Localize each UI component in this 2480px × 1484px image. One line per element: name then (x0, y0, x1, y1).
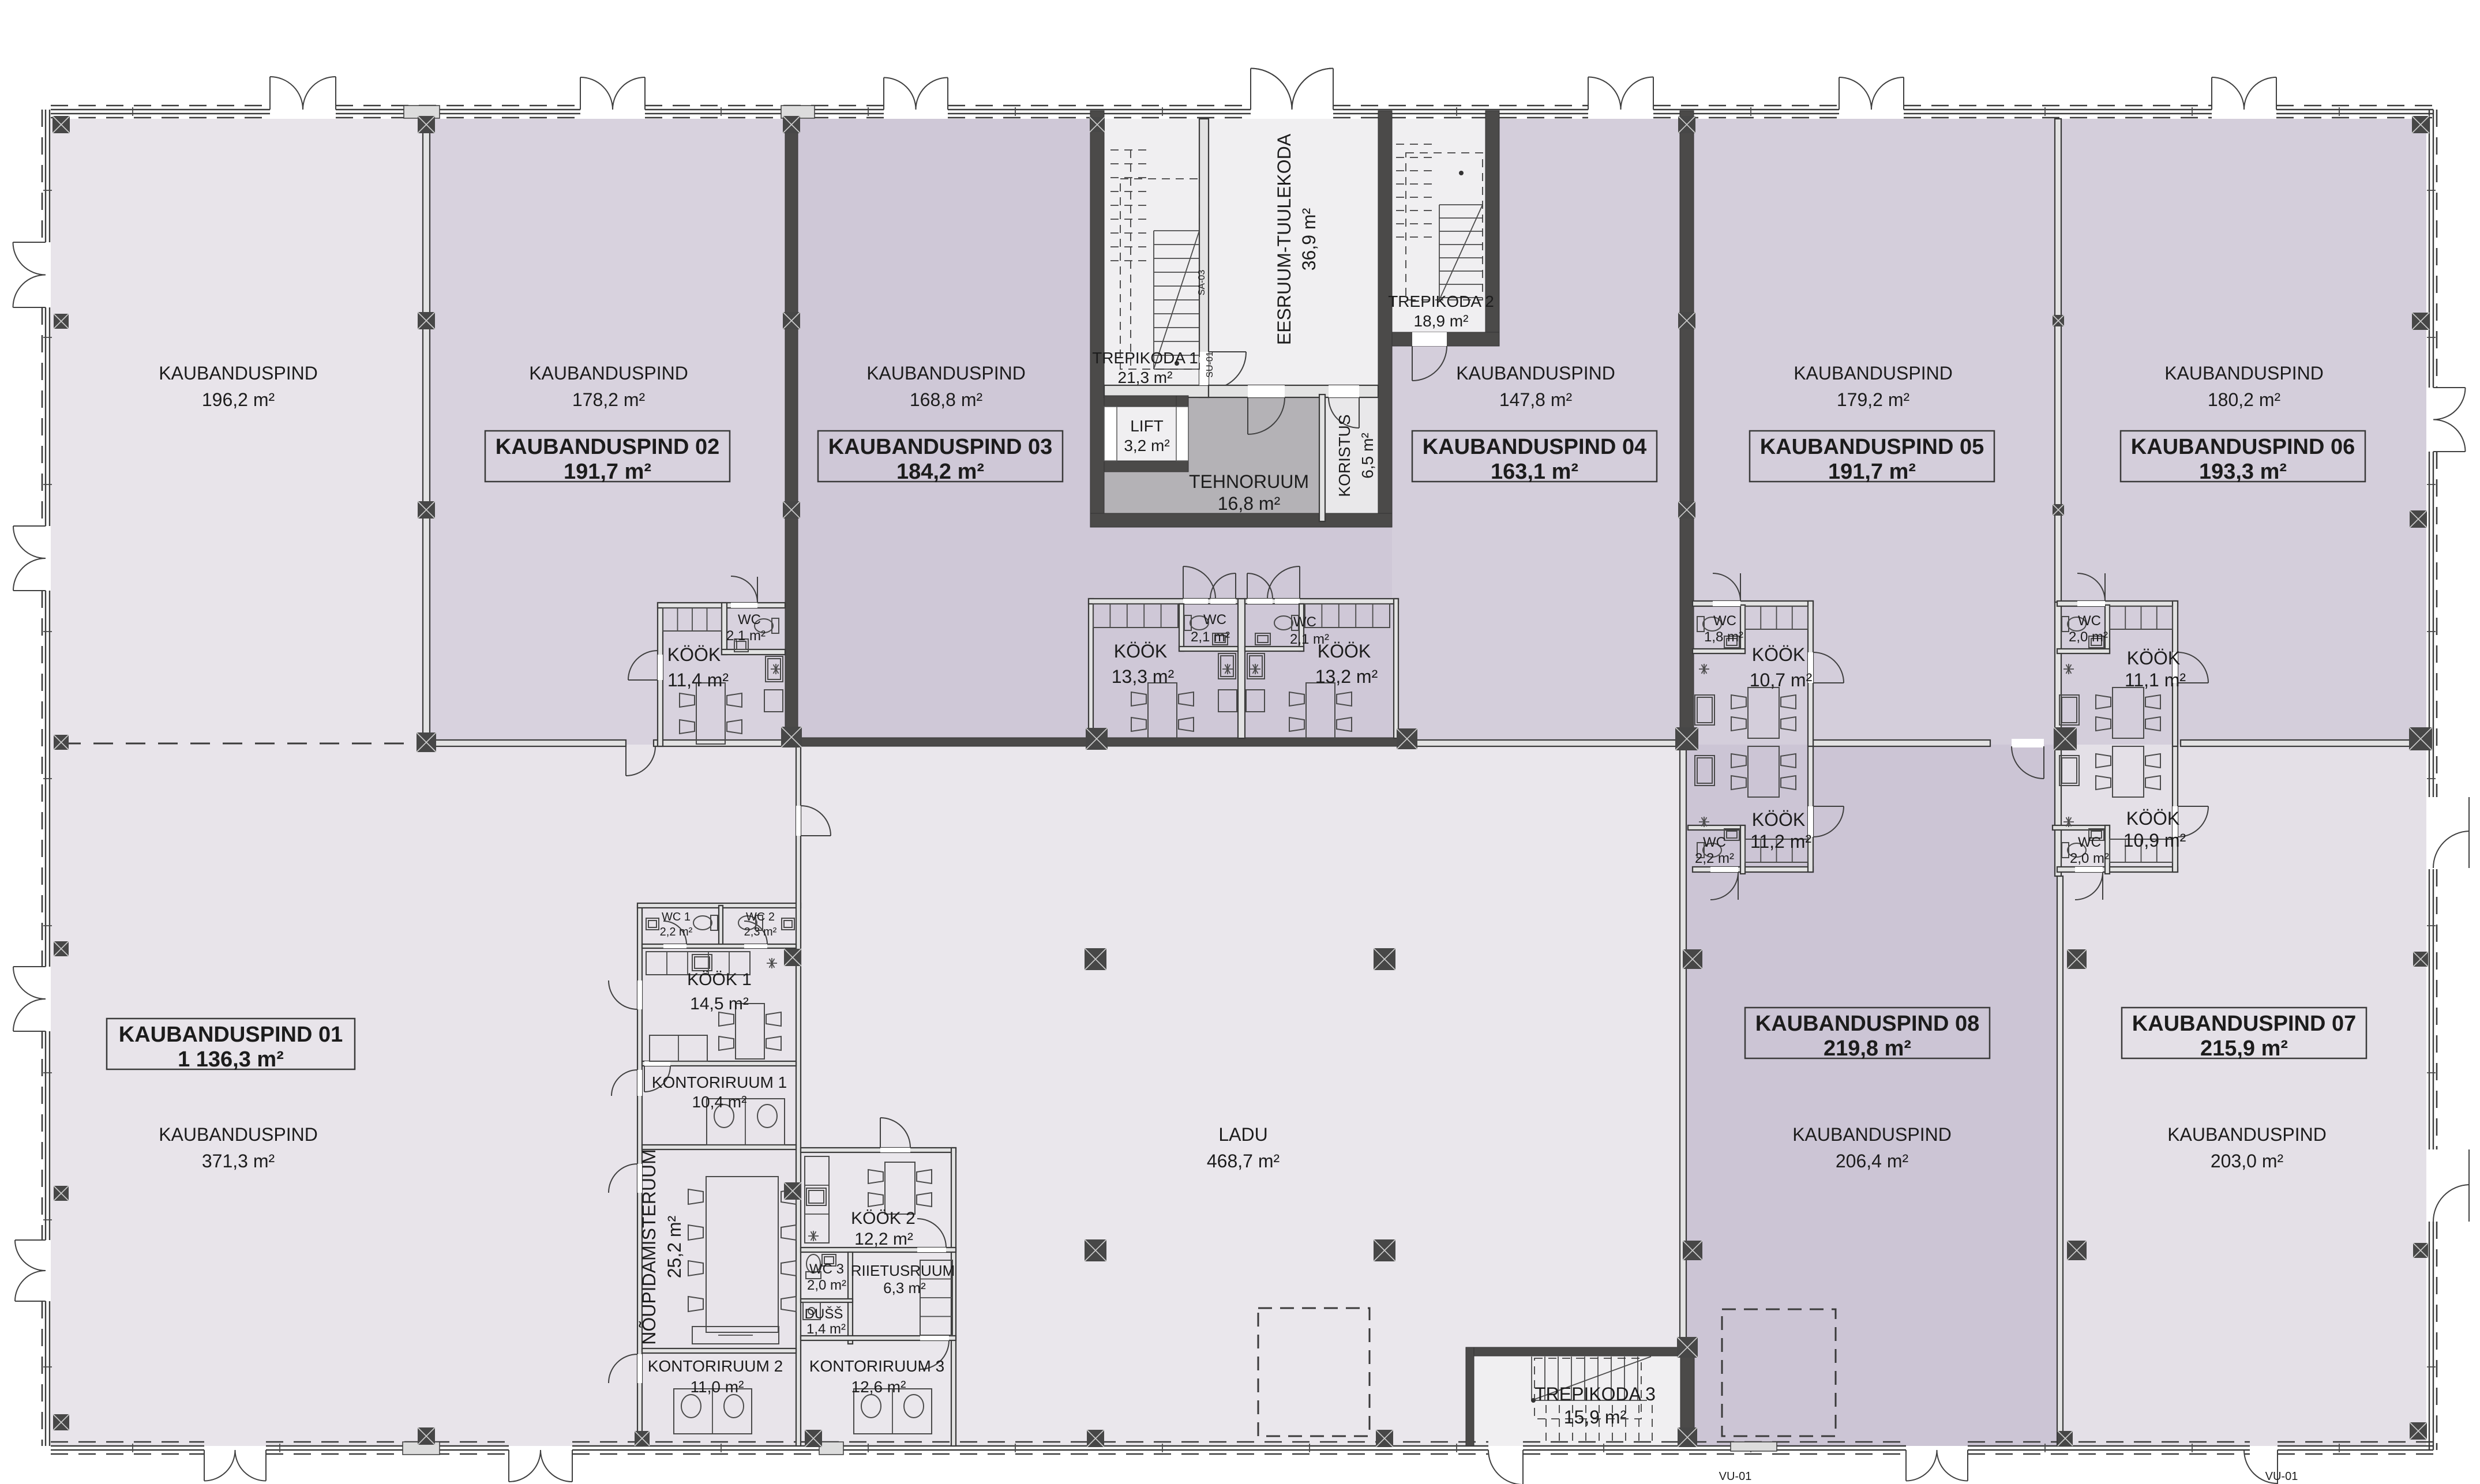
svg-text:25,2 m²: 25,2 m² (664, 1215, 685, 1278)
svg-text:RIIETUSRUUM: RIIETUSRUUM (851, 1262, 955, 1279)
svg-text:KONTORIRUUM 1: KONTORIRUUM 1 (652, 1073, 787, 1091)
svg-text:LIFT: LIFT (1130, 417, 1164, 435)
svg-text:36,9 m²: 36,9 m² (1299, 208, 1319, 270)
svg-text:WC 1: WC 1 (662, 911, 691, 923)
svg-text:10,7 m²: 10,7 m² (1750, 670, 1813, 690)
svg-text:15,9 m²: 15,9 m² (1564, 1407, 1627, 1427)
svg-text:1,8 m²: 1,8 m² (1704, 629, 1743, 645)
svg-text:184,2 m²: 184,2 m² (896, 460, 984, 484)
svg-text:191,7 m²: 191,7 m² (1828, 460, 1916, 484)
svg-text:203,0 m²: 203,0 m² (2211, 1151, 2284, 1171)
svg-text:468,7 m²: 468,7 m² (1207, 1151, 1280, 1171)
svg-text:11,1 m²: 11,1 m² (2125, 670, 2186, 690)
svg-text:KÖÖK: KÖÖK (1114, 641, 1167, 662)
svg-text:KORISTUS: KORISTUS (1335, 414, 1353, 497)
svg-text:147,8 m²: 147,8 m² (1499, 389, 1573, 410)
svg-text:11,4 m²: 11,4 m² (667, 670, 729, 690)
svg-text:11,2 m²: 11,2 m² (1750, 831, 1811, 852)
svg-text:180,2 m²: 180,2 m² (2208, 389, 2281, 410)
svg-text:1 136,3 m²: 1 136,3 m² (178, 1047, 284, 1072)
svg-text:WC 2: WC 2 (746, 911, 775, 923)
svg-text:2,1 m²: 2,1 m² (726, 628, 766, 644)
svg-text:163,1 m²: 163,1 m² (1491, 460, 1578, 484)
svg-text:21,3 m²: 21,3 m² (1118, 369, 1173, 386)
svg-text:10,9 m²: 10,9 m² (2123, 830, 2186, 851)
svg-text:KAUBANDUSPIND: KAUBANDUSPIND (2164, 363, 2324, 384)
svg-text:EESRUUM-TUULEKODA: EESRUUM-TUULEKODA (1274, 133, 1295, 345)
svg-text:2,2 m²: 2,2 m² (1695, 851, 1734, 866)
svg-text:18,9 m²: 18,9 m² (1414, 312, 1469, 330)
svg-text:206,4 m²: 206,4 m² (1836, 1151, 1909, 1171)
svg-text:2,1 m²: 2,1 m² (1191, 629, 1230, 645)
svg-text:2,3 m²: 2,3 m² (744, 926, 777, 938)
svg-text:LADU: LADU (1218, 1124, 1267, 1145)
svg-text:191,7 m²: 191,7 m² (564, 460, 651, 484)
svg-text:KAUBANDUSPIND: KAUBANDUSPIND (159, 1124, 318, 1145)
svg-text:KÖÖK: KÖÖK (667, 644, 721, 665)
svg-text:WC: WC (2078, 613, 2101, 629)
svg-text:10,4 m²: 10,4 m² (692, 1093, 747, 1111)
svg-text:KAUBANDUSPIND 03: KAUBANDUSPIND 03 (828, 435, 1053, 459)
svg-text:KÖÖK: KÖÖK (1752, 809, 1805, 830)
svg-text:WC: WC (1703, 835, 1726, 850)
svg-text:178,2 m²: 178,2 m² (572, 389, 646, 410)
svg-text:WC: WC (2078, 835, 2101, 850)
svg-text:1,4 m²: 1,4 m² (806, 1321, 846, 1337)
svg-text:179,2 m²: 179,2 m² (1837, 389, 1910, 410)
svg-text:KAUBANDUSPIND 01: KAUBANDUSPIND 01 (119, 1023, 343, 1047)
svg-text:6,5 m²: 6,5 m² (1359, 433, 1376, 478)
svg-text:3,2 m²: 3,2 m² (1124, 437, 1169, 454)
svg-text:KAUBANDUSPIND: KAUBANDUSPIND (1792, 1124, 1952, 1145)
svg-text:2,1 m²: 2,1 m² (1290, 632, 1329, 647)
svg-text:11,0 m²: 11,0 m² (691, 1378, 744, 1396)
svg-text:WC: WC (1293, 614, 1316, 630)
svg-text:16,8 m²: 16,8 m² (1218, 493, 1281, 514)
svg-text:196,2 m²: 196,2 m² (202, 389, 275, 410)
svg-text:KONTORIRUUM 3: KONTORIRUUM 3 (809, 1357, 944, 1375)
svg-text:KÖÖK: KÖÖK (2127, 648, 2180, 668)
svg-text:KÖÖK: KÖÖK (2126, 808, 2179, 829)
svg-text:KAUBANDUSPIND: KAUBANDUSPIND (159, 363, 318, 384)
svg-text:KONTORIRUUM 2: KONTORIRUUM 2 (648, 1357, 783, 1375)
svg-text:WC 3: WC 3 (809, 1261, 844, 1277)
svg-text:VU-01: VU-01 (1719, 1470, 1752, 1483)
svg-text:193,3 m²: 193,3 m² (2199, 460, 2287, 484)
svg-text:VU-01: VU-01 (2265, 1470, 2298, 1483)
svg-text:SU-01: SU-01 (1205, 351, 1215, 377)
svg-text:13,3 m²: 13,3 m² (1112, 666, 1175, 687)
svg-text:13,2 m²: 13,2 m² (1315, 666, 1378, 687)
svg-text:WC: WC (738, 612, 761, 628)
svg-text:KAUBANDUSPIND: KAUBANDUSPIND (1794, 363, 1953, 384)
svg-text:2,2 m²: 2,2 m² (660, 926, 693, 938)
svg-text:215,9 m²: 215,9 m² (2200, 1036, 2288, 1061)
svg-text:KAUBANDUSPIND 02: KAUBANDUSPIND 02 (496, 435, 720, 459)
svg-text:KÖÖK 1: KÖÖK 1 (687, 970, 752, 989)
svg-text:2,0 m²: 2,0 m² (2069, 629, 2108, 645)
svg-text:KAUBANDUSPIND: KAUBANDUSPIND (1456, 363, 1615, 384)
svg-text:12,2 m²: 12,2 m² (854, 1230, 913, 1249)
svg-text:KAUBANDUSPIND 04: KAUBANDUSPIND 04 (1423, 435, 1647, 459)
svg-text:14,5 m²: 14,5 m² (690, 994, 749, 1013)
svg-text:KAUBANDUSPIND: KAUBANDUSPIND (866, 363, 1026, 384)
svg-text:WC: WC (1713, 613, 1736, 629)
svg-text:TREPIKODA 1: TREPIKODA 1 (1092, 349, 1198, 367)
svg-text:168,8 m²: 168,8 m² (910, 389, 983, 410)
svg-text:KAUBANDUSPIND: KAUBANDUSPIND (2167, 1124, 2327, 1145)
svg-text:2,0 m²: 2,0 m² (2070, 851, 2109, 866)
svg-text:219,8 m²: 219,8 m² (1824, 1036, 1911, 1061)
svg-text:2,0 m²: 2,0 m² (807, 1278, 846, 1293)
svg-text:KAUBANDUSPIND 05: KAUBANDUSPIND 05 (1760, 435, 1984, 459)
svg-text:KAUBANDUSPIND 08: KAUBANDUSPIND 08 (1755, 1012, 1980, 1036)
svg-text:TREPIKODA 2: TREPIKODA 2 (1388, 292, 1494, 310)
svg-text:KAUBANDUSPIND: KAUBANDUSPIND (529, 363, 688, 384)
svg-text:TREPIKODA 3: TREPIKODA 3 (1534, 1384, 1656, 1404)
svg-text:NÕUPIDAMISTERUUM: NÕUPIDAMISTERUUM (639, 1149, 659, 1345)
svg-text:TEHNORUUM: TEHNORUUM (1189, 471, 1309, 492)
svg-text:KÖÖK: KÖÖK (1752, 644, 1805, 665)
svg-text:371,3 m²: 371,3 m² (202, 1151, 275, 1171)
svg-text:DUŠŠ: DUŠŠ (805, 1306, 843, 1322)
svg-text:KAUBANDUSPIND 07: KAUBANDUSPIND 07 (2132, 1012, 2357, 1036)
svg-text:KÖÖK 2: KÖÖK 2 (851, 1209, 916, 1228)
svg-text:12,6 m²: 12,6 m² (851, 1378, 906, 1396)
svg-text:6,3 m²: 6,3 m² (883, 1279, 926, 1297)
svg-text:KAUBANDUSPIND 06: KAUBANDUSPIND 06 (2131, 435, 2355, 459)
svg-text:SA-03: SA-03 (1197, 270, 1207, 296)
svg-text:WC: WC (1203, 612, 1226, 628)
